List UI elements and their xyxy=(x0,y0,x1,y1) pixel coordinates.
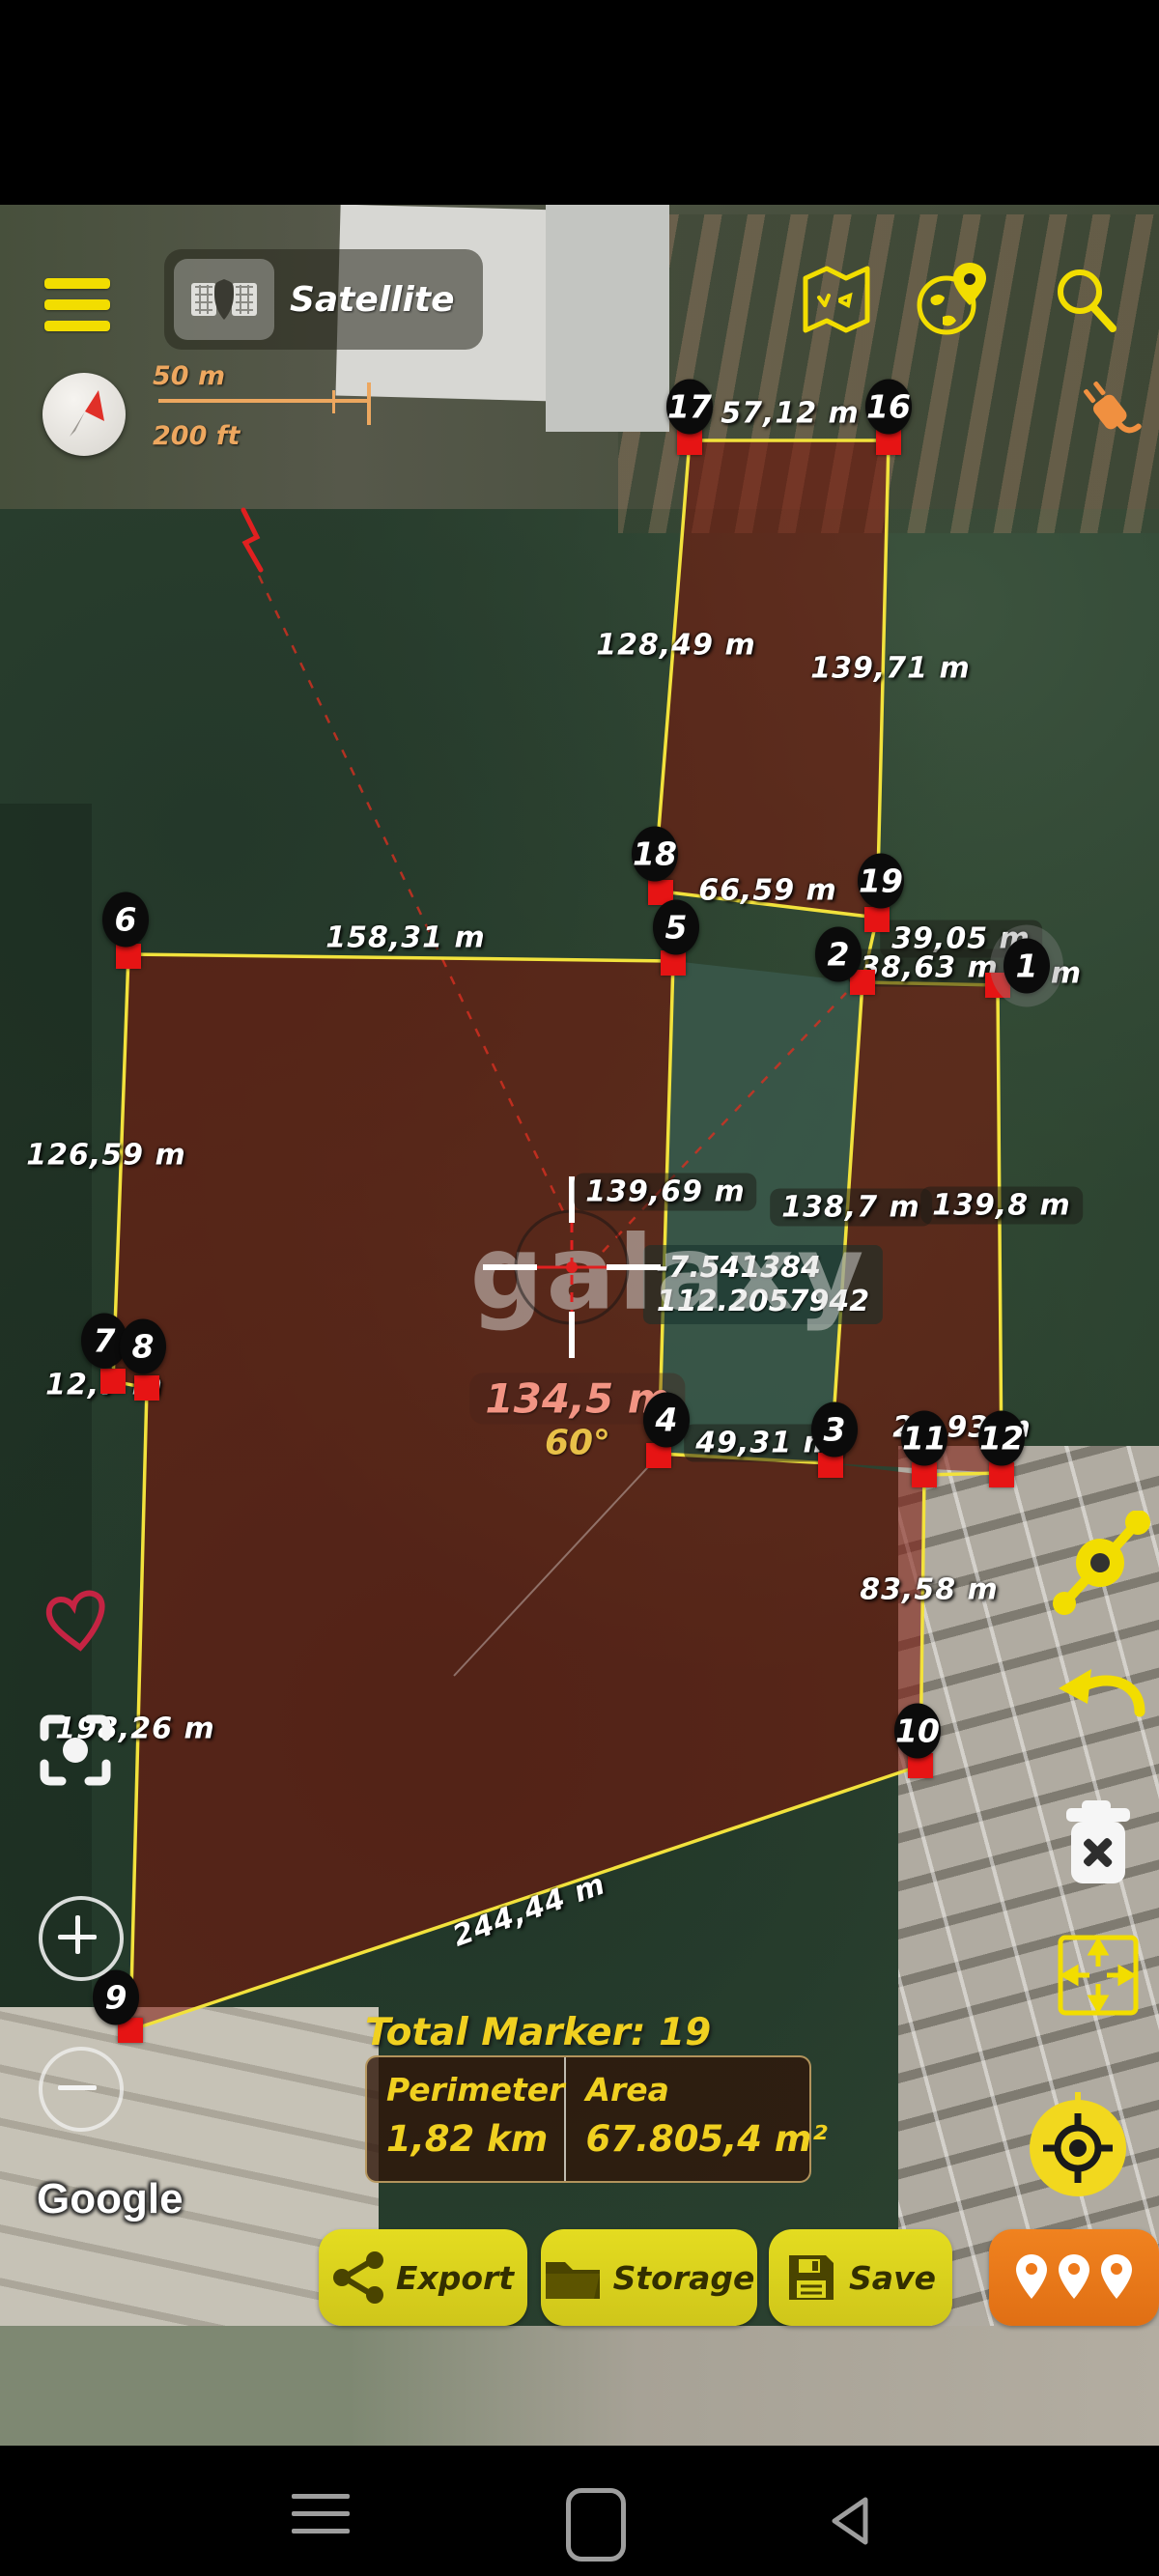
expand-button[interactable] xyxy=(1057,1934,1140,2017)
total-marker-label: Total Marker: xyxy=(365,2011,645,2054)
satellite-layer-button[interactable]: Satellite xyxy=(164,249,483,350)
compass-button[interactable] xyxy=(42,373,126,456)
back-button[interactable] xyxy=(823,2492,875,2550)
hamburger-icon xyxy=(44,278,110,289)
distance-label: 128,49 m xyxy=(596,629,755,663)
three-map-pins-icon xyxy=(1010,2250,1138,2305)
menu-button[interactable] xyxy=(44,278,110,334)
scale-imperial-label: 200 ft xyxy=(153,421,240,451)
app-screen: galaxy -7.541384 112.2057942 57,12 m128,… xyxy=(0,0,1159,2576)
minus-icon xyxy=(58,2085,97,2090)
undo-button[interactable] xyxy=(1047,1652,1149,1731)
recents-icon xyxy=(292,2494,350,2499)
current-angle-label: 60° xyxy=(545,1424,610,1463)
distance-label: 138,7 m xyxy=(770,1189,932,1227)
distance-label: 139,69 m xyxy=(574,1174,756,1211)
back-triangle-icon xyxy=(834,2500,865,2542)
floppy-disk-icon xyxy=(785,2251,837,2304)
perimeter-label: Perimeter xyxy=(386,2071,564,2109)
vertex-square[interactable] xyxy=(864,907,890,932)
my-location-button[interactable] xyxy=(1026,2090,1138,2202)
watermark: galaxy xyxy=(470,1214,867,1333)
scale-bar-line xyxy=(158,399,369,403)
marker-bubble-6[interactable]: 6 xyxy=(102,892,149,948)
marker-bubble-17[interactable]: 17 xyxy=(666,380,713,435)
share-icon xyxy=(332,2250,384,2305)
plug-icon xyxy=(1080,378,1139,442)
vertex-square[interactable] xyxy=(989,1462,1014,1487)
delete-button[interactable] xyxy=(1060,1798,1138,1887)
distance-label: 57,12 m xyxy=(721,397,860,431)
scale-bar-tick-mid xyxy=(332,390,335,413)
folded-map-icon xyxy=(806,269,867,330)
marker-bubble-2[interactable]: 2 xyxy=(815,927,862,982)
marker-bubble-16[interactable]: 16 xyxy=(865,380,912,435)
folder-icon xyxy=(544,2252,602,2303)
vertex-square[interactable] xyxy=(134,1375,159,1401)
map-type-button[interactable] xyxy=(794,259,877,342)
recents-button[interactable] xyxy=(292,2494,350,2546)
favorite-button[interactable] xyxy=(39,1584,114,1656)
storage-button[interactable]: Storage xyxy=(541,2229,757,2326)
zoom-out-button[interactable] xyxy=(39,2047,124,2132)
marker-bubble-8[interactable]: 8 xyxy=(120,1319,166,1374)
distance-label: 139,8 m xyxy=(920,1187,1083,1225)
scale-bar-tick xyxy=(367,382,371,425)
measurement-summary-table: Perimeter 1,82 km Area 67.805,4 m² xyxy=(365,2055,811,2183)
area-label: Area xyxy=(585,2071,827,2109)
disconnect-button[interactable] xyxy=(1060,369,1153,450)
distance-label: 158,31 m xyxy=(325,921,485,955)
area-column: Area 67.805,4 m² xyxy=(566,2057,827,2181)
marker-bubble-4[interactable]: 4 xyxy=(643,1393,690,1448)
distance-label: 139,71 m xyxy=(810,652,970,686)
marker-bubble-12[interactable]: 12 xyxy=(978,1411,1025,1466)
markers-list-button[interactable] xyxy=(989,2229,1159,2326)
vertex-square[interactable] xyxy=(912,1462,937,1487)
compass-needle-icon xyxy=(42,373,126,456)
route-tool-button[interactable] xyxy=(1051,1511,1151,1615)
map-bottom-strip xyxy=(0,2326,1159,2446)
satellite-label: Satellite xyxy=(290,280,455,320)
save-label: Save xyxy=(849,2259,936,2297)
distance-label: 126,59 m xyxy=(26,1139,185,1173)
marker-bubble-10[interactable]: 10 xyxy=(894,1704,941,1759)
zoom-in-button[interactable] xyxy=(39,1896,124,1981)
vertex-square[interactable] xyxy=(116,944,141,969)
save-button[interactable]: Save xyxy=(769,2229,952,2326)
marker-bubble-19[interactable]: 19 xyxy=(858,854,904,909)
heart-icon xyxy=(47,1592,107,1652)
export-button[interactable]: Export xyxy=(319,2229,527,2326)
perimeter-column: Perimeter 1,82 km xyxy=(367,2057,566,2181)
marker-bubble-9[interactable]: 9 xyxy=(93,1970,139,2025)
globe-location-button[interactable] xyxy=(910,255,999,344)
total-marker-count: 19 xyxy=(659,2011,711,2054)
marker-bubble-3[interactable]: 3 xyxy=(811,1402,858,1458)
google-watermark: Google xyxy=(37,2175,184,2223)
satellite-icon xyxy=(174,259,274,340)
marker-bubble-11[interactable]: 11 xyxy=(901,1411,947,1466)
scale-metric-label: 50 m xyxy=(153,361,225,391)
search-button[interactable] xyxy=(1045,259,1126,340)
vertex-square[interactable] xyxy=(100,1369,126,1394)
map-building-wing xyxy=(546,205,669,432)
marker-bubble-5[interactable]: 5 xyxy=(653,900,699,955)
marker-bubble-18[interactable]: 18 xyxy=(632,827,678,882)
perimeter-value: 1,82 km xyxy=(386,2118,564,2160)
distance-label: 66,59 m xyxy=(698,874,837,908)
distance-label: 83,58 m xyxy=(860,1573,999,1607)
total-marker-text: Total Marker: 19 xyxy=(365,2011,711,2054)
area-value: 67.805,4 m² xyxy=(585,2118,827,2160)
distance-label: m xyxy=(1051,957,1082,991)
marker-bubble-1[interactable]: 1 xyxy=(1004,939,1050,994)
center-focus-button[interactable] xyxy=(37,1712,114,1789)
export-label: Export xyxy=(396,2259,514,2297)
home-button[interactable] xyxy=(566,2488,626,2562)
storage-label: Storage xyxy=(613,2259,755,2297)
